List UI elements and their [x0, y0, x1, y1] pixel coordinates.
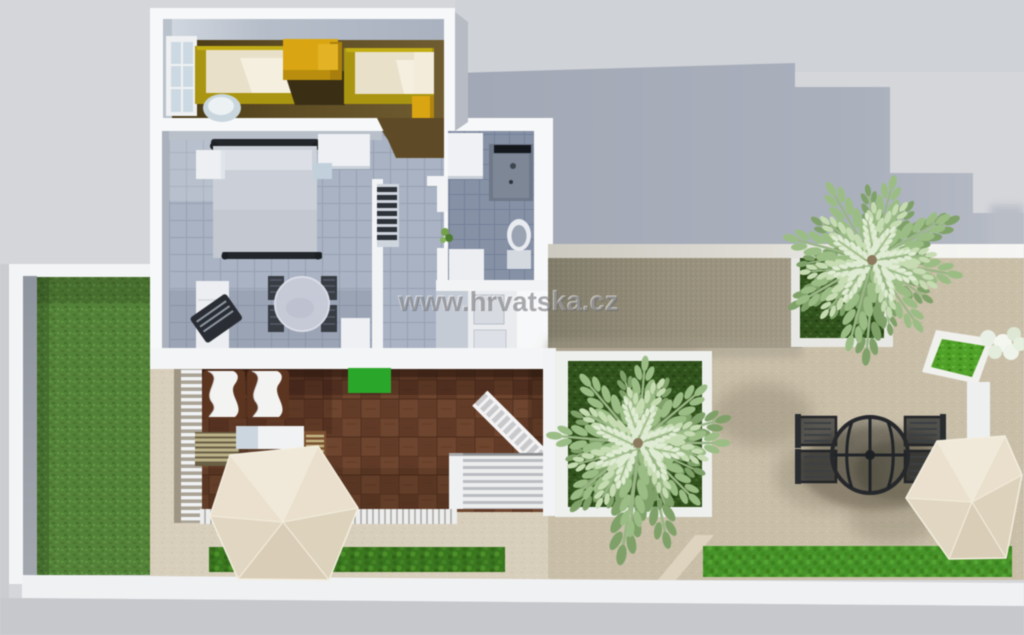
- svg-text:www.hrvatska.cz: www.hrvatska.cz: [398, 286, 620, 317]
